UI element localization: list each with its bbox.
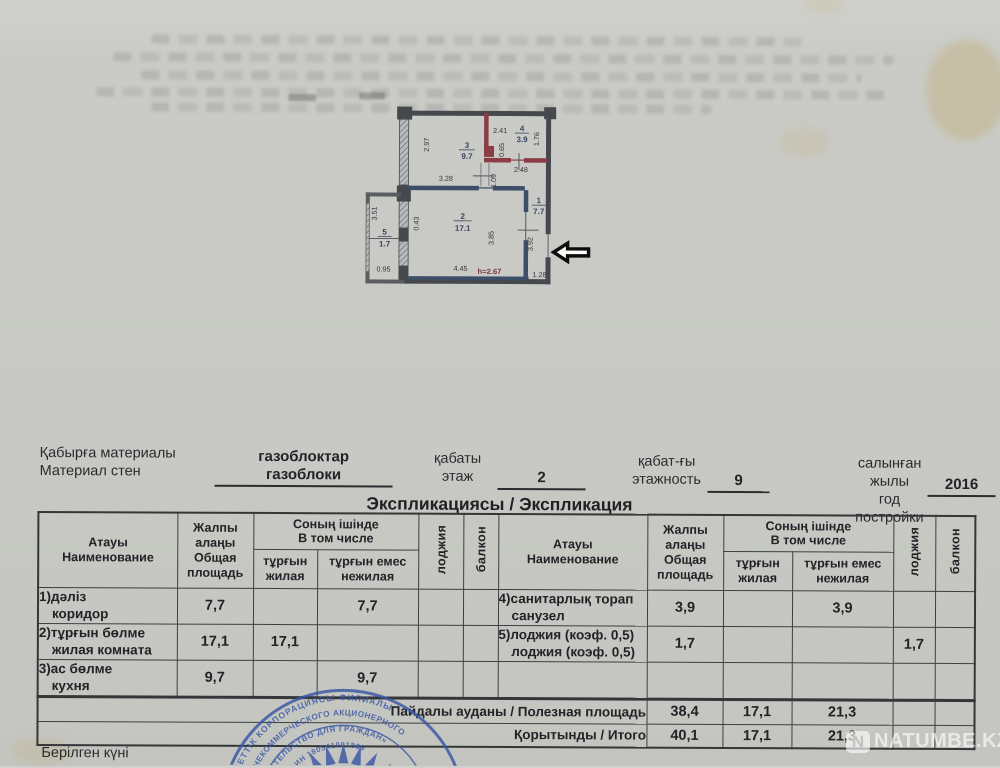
ceiling-height-label: h=2.67 (478, 267, 502, 276)
room-name-cell: 5)лоджия (коэф. 0,5)лоджия (коэф. 0,5) (498, 625, 647, 662)
living-area-cell: 17,1 (253, 624, 317, 660)
dim-room2-height: 3.85 (487, 231, 496, 245)
room3-number: 3 (465, 141, 470, 150)
room5-area: 1.7 (379, 239, 391, 248)
paper-stain (802, 0, 846, 14)
summary-nonliving: 21,3 (792, 700, 893, 724)
loggia-cell: 1,7 (893, 627, 935, 663)
col-header-loggia-right: лоджия (893, 516, 935, 591)
room1-area: 7.7 (533, 207, 545, 216)
room-name-cell: 1)дәлізкоридор (38, 587, 177, 624)
room4-number: 4 (520, 124, 525, 133)
nonliving-area-cell (792, 626, 893, 663)
balcony-cell (935, 591, 975, 627)
balcony-cell (935, 627, 975, 663)
total-area-cell: 17,1 (177, 624, 253, 660)
dim-bath-inner: 0.65 (497, 143, 506, 157)
issued-date-label: Берілген күні (41, 745, 128, 761)
document-photo: 3 9.7 4 3.9 1 7.7 2 17.1 5 1.7 2.97 3.28… (0, 0, 1000, 768)
table-row: 1)дәлізкоридор 7,7 7,7 4)санитарлық тора… (38, 587, 975, 627)
summary-balcony (935, 701, 975, 725)
summary-total: 40,1 (646, 724, 722, 748)
room-name-cell: 4)санитарлық торапсанузел (498, 589, 647, 626)
bleed-smudge (288, 94, 316, 101)
dim-kitchen-width: 2.97 (422, 138, 431, 152)
loggia-cell (893, 591, 935, 627)
room4-area: 3.9 (516, 135, 528, 144)
room2-area: 17.1 (455, 224, 471, 233)
official-stamp: МЕМЛЕКЕТТІК КОРПОРАЦИЯСЫ ФИЛИАЛЫ ФИЛИАЛ … (221, 679, 465, 766)
dim-loggia-inner: 0.43 (412, 217, 421, 231)
nonliving-area-cell: 3,9 (792, 590, 893, 627)
nonliving-area-cell (792, 662, 893, 699)
floor-plan: 3 9.7 4 3.9 1 7.7 2 17.1 5 1.7 2.97 3.28… (352, 99, 593, 295)
room-name-cell: 3)ас бөлмекухня (38, 659, 177, 696)
nonliving-area-cell: 7,7 (317, 588, 418, 625)
summary-row: Қорытынды / Итого 40,1 17,1 21,3 (37, 721, 974, 749)
dim-corridor-width: 1.28 (532, 270, 546, 279)
dim-room2-width: 4.45 (453, 264, 467, 273)
bleed-through-text (2, 0, 1000, 2)
dim-bath-top: 2.41 (493, 126, 507, 135)
table-row: 2)тұрғын бөлмежилая комната 17,1 17,1 5)… (38, 623, 975, 663)
floor-label: қабаты этаж (425, 450, 491, 486)
watermark: N NATUMBE.KZ (846, 730, 1000, 753)
summary-total: 38,4 (647, 700, 723, 724)
floors-total-value: 9 (708, 454, 770, 493)
summary-loggia (893, 701, 935, 725)
col-header-balcony-left: балкон (463, 514, 498, 589)
loggia-cell (893, 663, 935, 700)
year-value: 2016 (928, 456, 996, 497)
room1-number: 1 (537, 196, 542, 205)
room-name-cell: 2)тұрғын бөлмежилая комната (38, 623, 177, 660)
floors-total-label: қабат-ғы этажность (628, 453, 706, 489)
col-header-name-right: Атауы Наименование (498, 514, 647, 590)
col-header-nonliving-right: тұрғын емес нежилая (792, 551, 893, 590)
table-row: 3)ас бөлмекухня 9,7 9,7 (38, 659, 975, 700)
col-header-total-right: Жалпы алаңы Общая площадь (647, 515, 723, 590)
summary-living: 17,1 (723, 700, 792, 724)
total-area-cell: 1,7 (647, 626, 723, 662)
total-area-cell (647, 662, 723, 699)
dim-kitchen-length: 3.28 (439, 174, 453, 183)
total-area-cell: 3,9 (647, 590, 723, 626)
balcony-cell (463, 589, 498, 625)
balcony-cell (463, 661, 498, 698)
dim-loggia-height: 3.51 (370, 206, 379, 220)
bleed-line (151, 34, 801, 46)
col-header-nonliving-left: тұрғын емес нежилая (317, 549, 418, 588)
col-header-including-left: Соның ішінде В том числе (253, 513, 418, 550)
col-header-balcony-right: балкон (935, 516, 975, 591)
col-header-living-right: тұрғын жилая (723, 551, 792, 590)
total-area-cell: 7,7 (177, 588, 253, 624)
balcony-cell (935, 663, 975, 700)
bleed-line (141, 70, 861, 82)
dim-corridor-height: 3.92 (526, 237, 535, 251)
living-area-cell (723, 626, 792, 662)
paper-stain (779, 127, 831, 157)
living-area-cell (723, 590, 792, 626)
living-area-cell (253, 588, 317, 624)
col-header-total-left: Жалпы алаңы Общая площадь (177, 513, 253, 588)
plan-dimensions: 2.97 3.28 2.41 1.76 0.65 2.48 1.09 3.92 … (369, 125, 547, 279)
col-header-loggia-left: лоджия (418, 514, 463, 589)
watermark-text: NATUMBE.KZ (874, 730, 1000, 753)
bleed-line (113, 52, 893, 64)
nonliving-area-cell (317, 624, 418, 661)
material-value: газоблоктар газоблоки (215, 443, 393, 488)
watermark-logo-icon: N (846, 731, 870, 753)
col-header-living-left: тұрғын жилая (253, 549, 317, 588)
dim-loggia-width: 0.95 (376, 264, 390, 273)
room5-number: 5 (382, 227, 387, 236)
dim-bath-right: 1.76 (532, 132, 541, 146)
col-header-name-left: Атауы Наименование (38, 512, 177, 588)
col-header-including-right: Соның ішінде В том числе (723, 515, 893, 552)
loggia-cell (418, 589, 463, 625)
summary-table: Пайдалы ауданы / Полезная площадь 38,4 1… (36, 696, 975, 750)
summary-living: 17,1 (722, 724, 791, 748)
room3-area: 9.7 (461, 152, 473, 161)
living-area-cell (723, 662, 792, 699)
room-name-cell (498, 661, 647, 698)
explication-table: Атауы Наименование Жалпы алаңы Общая пло… (37, 511, 977, 701)
room2-number: 2 (460, 212, 465, 221)
entrance-arrow-icon (554, 243, 589, 261)
material-label: Қабырға материалы Материал стен (40, 444, 176, 481)
paper-stain (926, 40, 1000, 140)
floor-value: 2 (498, 451, 586, 490)
loggia-cell (418, 625, 463, 661)
bleed-line (96, 87, 886, 99)
plan-left-wall (396, 116, 411, 284)
dim-bath-door: 1.09 (489, 174, 498, 188)
dim-bath-width: 2.48 (514, 165, 528, 174)
balcony-cell (463, 625, 498, 661)
